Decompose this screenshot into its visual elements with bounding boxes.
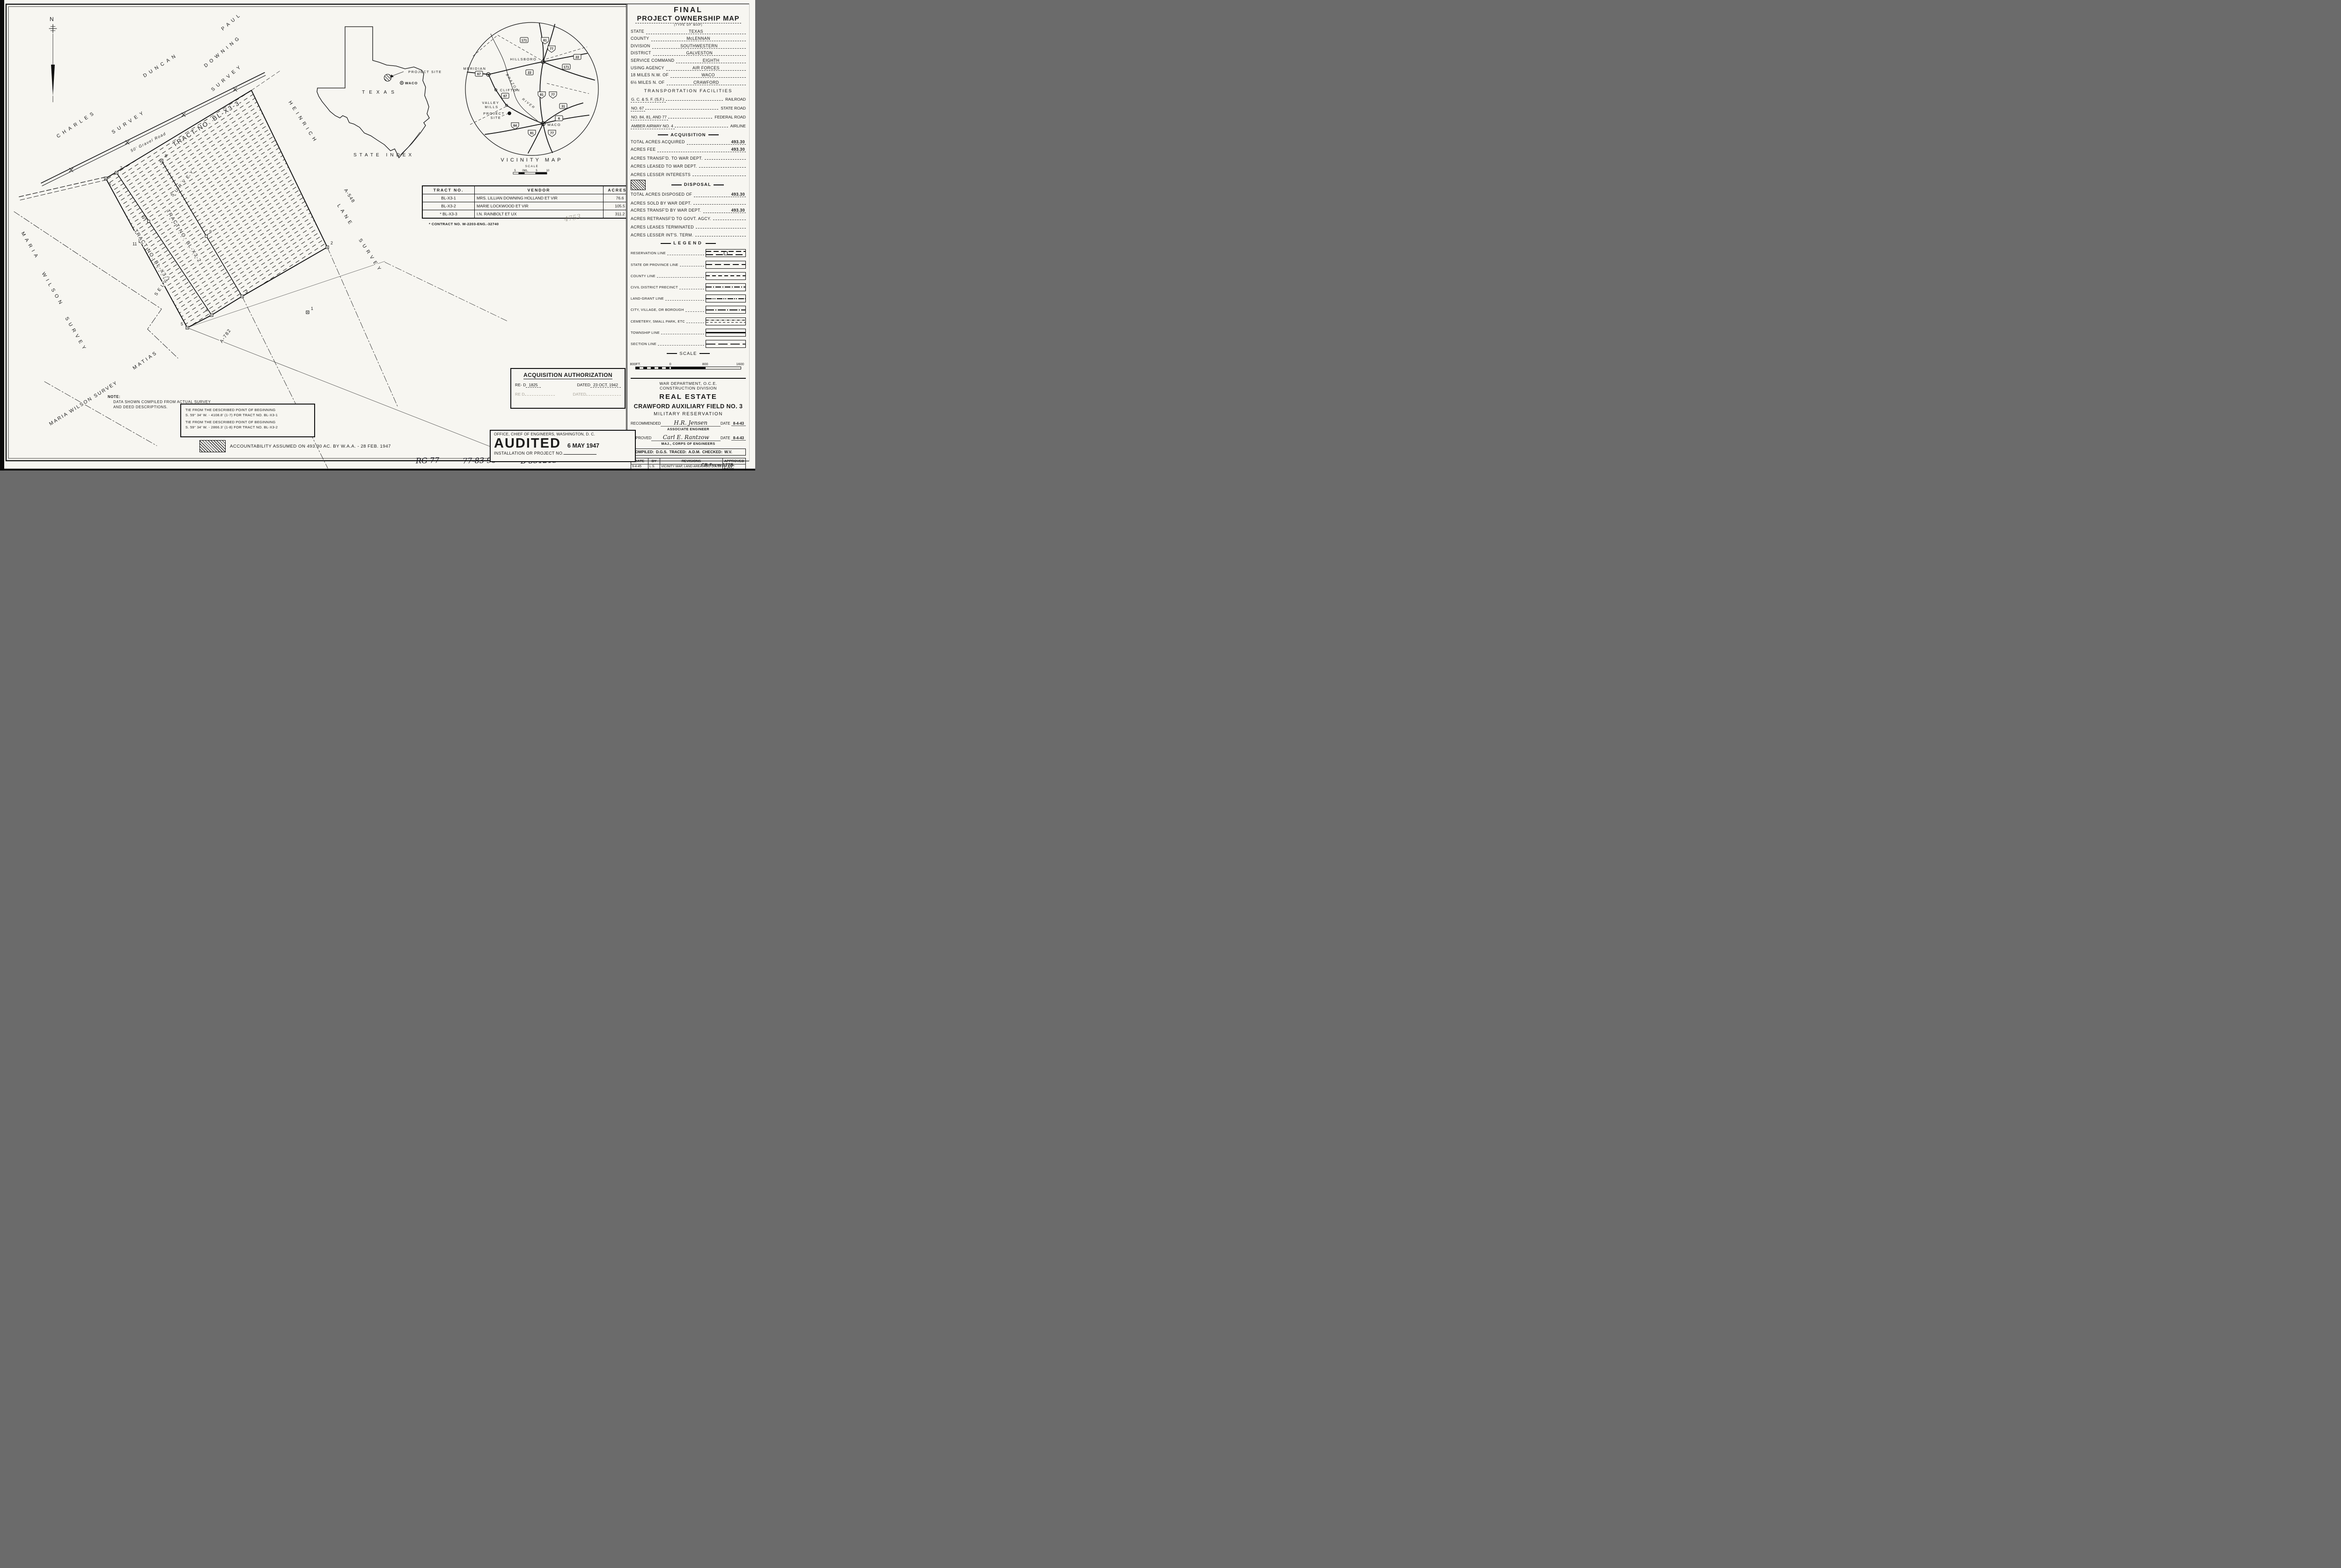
svg-text:5: 5 — [181, 322, 183, 326]
table-row: BL-X3-2 MARIE LOCKWOOD ET VIR 105.5 — [423, 202, 636, 210]
svg-text:11: 11 — [133, 242, 137, 246]
svg-text:81: 81 — [543, 39, 547, 43]
disp-transfd: ACRES TRANSF'D BY WAR DEPT.493.30 — [631, 208, 746, 213]
accountability-text: ACCOUNTABILITY ASSUMED ON 493.30 AC. BY … — [230, 444, 391, 449]
legend-sample-state — [706, 261, 746, 269]
field-state: STATETEXAS — [631, 29, 746, 34]
scan-edge-left — [0, 0, 4, 471]
field-using-agency: USING AGENCYAIR FORCES — [631, 66, 746, 71]
transport-state-road: NO. 67STATE ROAD — [631, 105, 746, 111]
disposal-hatch-swatch — [631, 180, 646, 190]
svg-text:31: 31 — [561, 105, 565, 109]
abstract-label-a782: A-782 — [219, 328, 233, 344]
abstract-label-a548: A-548 — [343, 188, 356, 204]
legend-township: TOWNSHIP LINE — [631, 329, 746, 337]
legend-reservation: RESERVATION LINE — [631, 249, 746, 257]
town-valley-mills: VALLEY — [482, 101, 500, 105]
re-d-value: 1825 — [526, 383, 540, 388]
survey-label-downing: DOWNING — [203, 34, 243, 69]
acq-transfd: ACRES TRANSF'D. TO WAR DEPT. — [631, 155, 746, 161]
town-waco: WACO — [547, 123, 561, 127]
vicinity-project-site-label: PROJECT — [483, 111, 505, 116]
shield-84: 84 — [511, 123, 519, 129]
recommended-date: 8-4-43 — [731, 421, 746, 426]
col-header-vendor: VENDOR — [475, 186, 604, 194]
state-index-project-site-label: PROJECT SITE — [408, 70, 442, 74]
cell-tract: BL-X3-2 — [423, 202, 475, 210]
shield-77c: 77 — [548, 130, 556, 137]
survey-label-duncan: DUNCAN — [142, 52, 179, 79]
compiled-row: COMPILED:D.G.S. TRACED:A.D.M. CHECKED:W.… — [631, 449, 746, 456]
field-miles-n: 6½ MILES N. OFCRAWFORD — [631, 80, 746, 85]
north-label: N — [50, 16, 54, 22]
dated-label-2: DATED — [573, 392, 587, 397]
svg-text:81: 81 — [540, 94, 544, 97]
field-county: COUNTYMcLENNAN — [631, 36, 746, 41]
tract-vendor-table: TRACT NO. VENDOR ACRES ± BL-X3-1 MRS. LI… — [422, 185, 637, 219]
acq-auth-row-1: RE- D 1825 DATED 23 OCT. 1942 — [515, 383, 621, 388]
approved-signature: Carl E. Rantzow — [663, 434, 709, 441]
dated-value-2 — [586, 395, 621, 396]
survey-label-heinrich: HEINRICH — [287, 100, 319, 145]
cell-tract: BL-X3-1 — [423, 194, 475, 202]
svg-text:3: 3 — [245, 289, 248, 294]
tie-2-line-1: TIE FROM THE DESCRIBED POINT OF BEGINNIN… — [185, 420, 310, 425]
svg-text:6: 6 — [109, 182, 111, 186]
survey-label-maria: MARIA — [20, 231, 41, 261]
construction-division-line: CONSTRUCTION DIVISION — [631, 386, 746, 390]
military-reservation-line: MILITARY RESERVATION — [631, 412, 746, 417]
legend-sample-landgrant — [706, 294, 746, 302]
disp-lesser-term: ACRES LESSER INT'S. TERM. — [631, 231, 746, 237]
svg-text:7: 7 — [120, 166, 122, 170]
survey-map: N — [14, 11, 524, 468]
legend-land-grant: LAND-GRANT LINE — [631, 294, 746, 302]
vicinity-title: VICINITY MAP — [501, 157, 563, 163]
svg-text:171: 171 — [564, 66, 569, 69]
survey-label-wilson: WILSON — [41, 271, 65, 308]
form-number: CR-Form-177B — [701, 463, 734, 467]
state-index: PROJECT SITE WACO TEXAS STATE INDEX — [317, 27, 442, 158]
installation-no-label: INSTALLATION OR PROJECT NO. — [494, 451, 564, 456]
table-header-row: TRACT NO. VENDOR ACRES ± — [423, 186, 636, 194]
re-d-label-2: RE D — [515, 392, 525, 397]
disposal-header: DISPOSAL — [649, 182, 746, 187]
shield-67a: 67 — [475, 71, 483, 76]
town-hillsboro: HILLSBORO — [510, 57, 537, 61]
survey-label-lane: LANE — [336, 203, 354, 228]
vicinity-scale-bar: 5 0ML. 5 10 — [513, 169, 550, 174]
installation-no-blank — [564, 450, 596, 455]
town-valley-mills-2: MILLS — [485, 105, 498, 109]
tie-2-line-2: S. 59° 34' W. - 2866.3' (1-8) FOR TRACT … — [185, 425, 310, 430]
survey-label-maria-survey: SURVEY — [64, 316, 88, 353]
hatch-swatch — [199, 440, 226, 452]
approved-row: APPROVED Carl E. Rantzow DATE 8-4-43 — [631, 434, 746, 441]
legend-city-village: CITY, VILLAGE, OR BOROUGH — [631, 306, 746, 314]
north-arrow-icon: N — [49, 16, 57, 102]
agency-block: WAR DEPARTMENT, O.C.E. CONSTRUCTION DIVI… — [631, 378, 746, 446]
shield-77a: 77 — [548, 46, 555, 52]
audited-stamp-text: AUDITED — [494, 436, 561, 450]
legend-cemetery: CEMETERY, SMALL PARK, ETC — [631, 317, 746, 325]
survey-label-charles: CHARLES — [56, 110, 97, 140]
svg-text:84: 84 — [513, 125, 517, 128]
town-meridian: MERIDIAN — [464, 66, 486, 71]
legend-sample-civil — [706, 283, 746, 291]
svg-text:0ML.: 0ML. — [522, 169, 529, 172]
recommended-signature: H.R. Jensen — [674, 420, 707, 426]
survey-label-paul-survey: SURVEY — [210, 63, 244, 93]
field-service-command: SERVICE COMMANDEIGHTH — [631, 58, 746, 63]
field-miles-nw: 18 MILES N.W. OFWACO — [631, 73, 746, 78]
svg-text:1: 1 — [311, 306, 313, 311]
shield-22b: 22 — [526, 70, 533, 75]
svg-text:77: 77 — [550, 132, 554, 135]
vicinity-map: HILLSBORO MERIDIAN CLIFTON VALLEY MILLS … — [464, 22, 598, 174]
transportation-header: TRANSPORTATION FACILITIES — [631, 88, 746, 94]
shield-77b: 77 — [549, 92, 557, 98]
svg-text:77: 77 — [550, 48, 553, 51]
cell-vendor: I.N. RAINBOLT ET UX — [475, 210, 604, 218]
approved-date: 8-4-43 — [731, 436, 746, 441]
cell-vendor: MRS. LILLIAN DOWNING HOLLAND ET VIR — [475, 194, 604, 202]
map-sheet: N — [0, 0, 755, 471]
svg-text:67: 67 — [477, 73, 481, 76]
re-d-label: RE- D — [515, 383, 526, 387]
svg-text:171: 171 — [522, 39, 527, 43]
acq-total-acres: TOTAL ACRES ACQUIRED493.30 — [631, 140, 746, 145]
legend-section: SECTION LINE — [631, 340, 746, 348]
vicinity-project-site-label-2: SITE — [491, 116, 501, 120]
shield-171a: 171 — [520, 37, 528, 43]
legend-county-line: COUNTY LINE — [631, 272, 746, 280]
svg-text:22: 22 — [528, 72, 531, 75]
disp-retransfd: ACRES RETRANSF'D TO GOVT. AGCY. — [631, 215, 746, 221]
field-district: DISTRICTGALVESTON — [631, 51, 746, 56]
field-division: DIVISIONSOUTHWESTERN — [631, 44, 746, 49]
highway-shields: 171 81 77 22 171 22 67 67 81 77 31 6 84 … — [475, 37, 581, 137]
title-final: FINAL — [631, 6, 746, 15]
cell-vendor: MARIE LOCKWOOD ET VIR — [475, 202, 604, 210]
scale-tick-0: 0 — [669, 362, 671, 366]
svg-text:RIVER: RIVER — [521, 98, 536, 110]
shield-171b: 171 — [562, 64, 570, 69]
cell-tract: * BL-X3-3 — [423, 210, 475, 218]
svg-text:5: 5 — [536, 169, 537, 172]
legend-sample-reservation — [706, 249, 746, 257]
acquisition-authorization-box: ACQUISITION AUTHORIZATION RE- D 1825 DAT… — [510, 368, 626, 409]
shield-67b: 67 — [501, 93, 509, 98]
svg-text:22: 22 — [575, 56, 579, 59]
project-site-marker — [384, 74, 391, 81]
state-index-texas-label: TEXAS — [362, 90, 398, 95]
survey-label-matias: MATIAS — [132, 350, 159, 371]
audit-date: 6 MAY 1947 — [567, 442, 599, 449]
svg-text:2: 2 — [331, 241, 333, 245]
texas-coast-island — [400, 132, 420, 155]
real-estate-title: REAL ESTATE — [631, 393, 746, 401]
title-block-panel: FINAL PROJECT OWNERSHIP MAP (TYPE OF MAP… — [626, 4, 749, 461]
legend-sample-section — [706, 340, 746, 348]
acq-leased: ACRES LEASED TO WAR DEPT. — [631, 162, 746, 169]
tie-note-box: TIE FROM THE DESCRIBED POINT OF BEGINNIN… — [180, 404, 315, 437]
svg-text:67: 67 — [503, 95, 507, 98]
shield-22a: 22 — [574, 54, 581, 59]
recommended-title: ASSOCIATE ENGINEER — [631, 427, 746, 431]
shield-81b: 81 — [538, 92, 545, 98]
state-index-waco-label: WACO — [405, 81, 418, 85]
transport-federal-road: NO. 84, 81, AND 77FEDERAL ROAD — [631, 114, 746, 120]
dated-label: DATED — [577, 383, 590, 387]
tract-polygons — [106, 90, 327, 328]
legend-header: LEGEND — [631, 241, 746, 246]
scale-tick-1600: 1600 — [736, 362, 744, 366]
acq-auth-title: ACQUISITION AUTHORIZATION — [523, 372, 612, 379]
vicinity-scale-label: SCALE — [525, 165, 539, 168]
legend-sample-cemetery — [706, 317, 746, 325]
state-index-title: STATE INDEX — [353, 153, 414, 158]
shield-81c: 81 — [528, 130, 536, 137]
table-row: BL-X3-1 MRS. LILLIAN DOWNING HOLLAND ET … — [423, 194, 636, 202]
shield-6: 6 — [555, 116, 563, 121]
scale-tick-800ft: 800FT. — [630, 362, 641, 366]
re-d-value-2 — [525, 395, 555, 396]
acq-acres-fee: ACRES FEE493.30 — [631, 147, 746, 152]
acquisition-header: ACQUISITION — [631, 133, 746, 138]
legend-state-line: STATE OR PROVINCE LINE — [631, 261, 746, 269]
disposal-header-row: DISPOSAL — [631, 180, 746, 190]
survey-label-paul: PAUL — [220, 11, 243, 32]
transport-airline: AMBER AIRWAY NO. 4AIRLINE — [631, 123, 746, 129]
contract-footnote: * CONTRACT NO. W-2203-ENG.-32740 — [429, 222, 499, 226]
note-label: NOTE: — [108, 394, 211, 399]
legend-sample-city — [706, 306, 746, 314]
handwritten-rg: RG 77 — [416, 456, 440, 465]
table-row: * BL-X3-3 I.N. RAINBOLT ET UX 311.2 — [423, 210, 636, 218]
transport-railroad: G. C. & S. F. (S,F.)RAILROAD — [631, 96, 746, 103]
svg-text:10: 10 — [546, 169, 550, 172]
survey-label-lane-survey: SURVEY — [357, 237, 383, 274]
tie-1-line-1: TIE FROM THE DESCRIBED POINT OF BEGINNIN… — [185, 408, 310, 413]
survey-label-duncan-survey: SURVEY — [110, 109, 147, 135]
svg-text:8: 8 — [165, 154, 167, 158]
col-header-tract-no: TRACT NO. — [423, 186, 475, 194]
title-project-ownership-map: PROJECT OWNERSHIP MAP — [635, 15, 742, 23]
scale-bar: 800FT. 0 800 1600 — [635, 362, 741, 373]
svg-text:10: 10 — [142, 215, 147, 220]
scale-header: SCALE — [631, 351, 746, 356]
recommended-row: RECOMMENDED H.R. Jensen DATE 8-4-43 — [631, 420, 746, 427]
scale-tick-800: 800 — [702, 362, 708, 366]
type-of-map-caption: (TYPE OF MAP) — [631, 23, 746, 27]
vicinity-town-labels: HILLSBORO MERIDIAN CLIFTON VALLEY MILLS … — [464, 57, 561, 127]
scan-edge-bottom — [0, 469, 755, 471]
legend-sample-county — [706, 272, 746, 280]
legend-civil-district: CIVIL DISTRICT PRECINCT — [631, 283, 746, 291]
acq-lesser: ACRES LESSER INTERESTS — [631, 171, 746, 177]
svg-text:4: 4 — [206, 308, 208, 312]
acq-auth-row-2: RE D DATED — [515, 392, 621, 397]
svg-text:81: 81 — [530, 132, 534, 135]
disp-leases-term: ACRES LEASES TERMINATED — [631, 223, 746, 229]
dated-value: 23 OCT. 1942 — [590, 383, 621, 388]
svg-text:77: 77 — [551, 94, 555, 97]
shield-31: 31 — [559, 103, 567, 109]
accountability-note: ACCOUNTABILITY ASSUMED ON 493.30 AC. BY … — [199, 440, 391, 452]
approved-title: MAJ., CORPS OF ENGINEERS — [631, 442, 746, 446]
disp-sold: ACRES SOLD BY WAR DEPT. — [631, 199, 746, 206]
svg-text:6: 6 — [558, 118, 560, 121]
svg-text:9: 9 — [209, 229, 212, 234]
war-department-line: WAR DEPARTMENT, O.C.E. — [631, 381, 746, 386]
legend-sample-township — [706, 329, 746, 337]
audited-stamp-box: OFFICE, CHIEF OF ENGINEERS, WASHINGTON, … — [490, 430, 636, 462]
disp-total: TOTAL ACRES DISPOSED OF493.30 — [631, 192, 746, 197]
svg-text:5: 5 — [514, 169, 516, 172]
installation-title: CRAWFORD AUXILIARY FIELD NO. 3 — [631, 403, 746, 410]
tie-1-line-2: S. 59° 34' W. - 4108.8' (1-7) FOR TRACT … — [185, 413, 310, 418]
